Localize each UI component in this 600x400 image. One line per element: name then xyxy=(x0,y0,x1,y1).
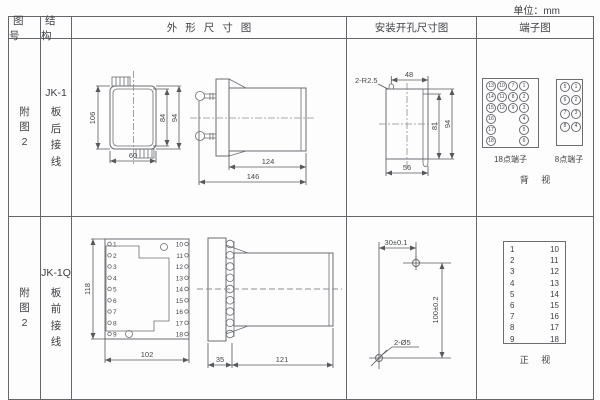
pin: 6 xyxy=(519,136,529,146)
pin: 15 xyxy=(486,103,496,113)
jk1-outline-drawing: 106 84 94 60 xyxy=(72,39,347,217)
svg-text:2-R2.5: 2-R2.5 xyxy=(355,76,378,85)
svg-text:18: 18 xyxy=(176,332,184,339)
mount-hole xyxy=(161,244,168,251)
bottom-connector xyxy=(136,149,154,158)
pin: 4 xyxy=(519,114,529,124)
svg-text:4: 4 xyxy=(113,275,117,282)
drawing-page: 单位：mm 图号 结构 外形尺寸图 安装开孔尺寸图 端子图 附 图 2 JK-1… xyxy=(0,0,600,400)
pin: 7 xyxy=(560,109,570,119)
svg-text:14: 14 xyxy=(176,287,184,294)
dim-124: 124 xyxy=(229,153,306,170)
row2-outline-cell: 1 2 3 4 5 6 7 8 9 10 11 12 13 xyxy=(72,217,347,399)
right-terminals: 10 11 12 13 14 15 16 17 18 xyxy=(176,242,189,339)
svg-text:106: 106 xyxy=(88,112,97,125)
terminal-col-left: 12 34 56 78 9 xyxy=(510,244,514,341)
terminal-screw xyxy=(196,92,217,101)
pin: 7 xyxy=(508,81,518,91)
row2-terminal-cell: 12 34 56 78 9 1011 1213 1415 1617 18 正 视 xyxy=(477,217,593,399)
label-8pt: 8点端子 xyxy=(549,154,589,165)
hole-label: 2-Ø5 xyxy=(382,338,419,355)
pin: 3 xyxy=(519,103,529,113)
svg-text:2: 2 xyxy=(113,253,117,260)
svg-text:12: 12 xyxy=(176,264,184,271)
pin: 17 xyxy=(486,125,496,135)
pin: 1 xyxy=(519,81,529,91)
svg-text:94: 94 xyxy=(443,120,452,128)
dim-30: 30±0.1 xyxy=(379,238,416,369)
pin: 2 xyxy=(519,92,529,102)
dim-100: 100±0.2 xyxy=(431,263,442,358)
svg-text:16: 16 xyxy=(176,309,184,316)
svg-text:124: 124 xyxy=(262,157,275,166)
pin: 2 xyxy=(571,95,581,105)
row1-fig-no: 附 图 2 xyxy=(9,39,41,217)
header-fig-no: 图号 xyxy=(9,17,41,39)
row1-terminal-cell: 13 14 15 16 17 18 10 11 12 7 8 9 xyxy=(477,39,593,217)
svg-text:13: 13 xyxy=(176,275,184,282)
drawing-table: 图号 结构 外形尺寸图 安装开孔尺寸图 端子图 附 图 2 JK-1 板 后 接… xyxy=(8,16,594,400)
row2-fig-no: 附 图 2 xyxy=(9,217,41,399)
jk1-mounting-drawing: 2-R2.5 48 81 94 xyxy=(347,39,477,217)
terminal-col-right: 1011 1213 1415 1617 18 xyxy=(550,244,559,341)
pin: 3 xyxy=(571,109,581,119)
top-slot xyxy=(389,84,394,89)
terminal-screw xyxy=(196,132,217,141)
row1-mounting-cell: 2-R2.5 48 81 94 xyxy=(347,39,477,217)
pin: 5 xyxy=(560,82,570,92)
row1-outline-cell: 106 84 94 60 xyxy=(72,39,347,217)
dim-102: 102 xyxy=(105,339,189,363)
jk1q-mounting-drawing: 30±0.1 100±0.2 2-Ø5 xyxy=(347,217,477,399)
row1-structure: JK-1 板 后 接 线 xyxy=(41,39,72,217)
unit-label: 单位：mm xyxy=(513,2,560,17)
header-outline: 外形尺寸图 xyxy=(72,17,347,39)
svg-text:35: 35 xyxy=(216,355,224,364)
jk1q-front-view: 1 2 3 4 5 6 7 8 9 10 11 12 13 xyxy=(83,239,189,363)
label-18pt: 18点端子 xyxy=(480,154,541,165)
pin: 11 xyxy=(497,92,507,102)
pin: 1 xyxy=(571,82,581,92)
row2-mounting-cell: 30±0.1 100±0.2 2-Ø5 xyxy=(347,217,477,399)
svg-text:121: 121 xyxy=(276,355,289,364)
terminal-block-8: 5 6 7 8 1 2 3 4 xyxy=(556,79,583,146)
svg-text:84: 84 xyxy=(158,114,167,122)
pin: 5 xyxy=(519,125,529,135)
pin: 18 xyxy=(486,136,496,146)
svg-text:48: 48 xyxy=(405,70,413,79)
slot-label: 2-R2.5 xyxy=(355,76,388,89)
terminal-table: 12 34 56 78 9 1011 1213 1415 1617 18 xyxy=(503,241,566,344)
svg-text:17: 17 xyxy=(176,320,184,327)
dim-48: 48 xyxy=(391,70,428,89)
dim-81: 81 xyxy=(423,94,441,159)
top-hole xyxy=(403,256,451,270)
svg-text:7: 7 xyxy=(113,309,117,316)
pin: 13 xyxy=(486,81,496,91)
svg-text:56: 56 xyxy=(403,163,411,172)
svg-text:10: 10 xyxy=(176,242,184,249)
pin: 14 xyxy=(486,92,496,102)
header-structure: 结构 xyxy=(41,17,72,39)
mount-hole xyxy=(126,331,133,338)
row2-structure: JK-1Q 板 前 接 线 xyxy=(41,217,72,399)
jk1q-side-view: 35 121 xyxy=(197,238,342,368)
svg-text:9: 9 xyxy=(113,332,117,339)
svg-text:60: 60 xyxy=(129,151,137,160)
dim-84: 84 xyxy=(153,89,169,146)
jk1-front-view: 106 84 94 60 xyxy=(88,71,181,164)
dim-118: 118 xyxy=(83,239,105,339)
svg-text:11: 11 xyxy=(176,253,183,260)
svg-text:2-Ø5: 2-Ø5 xyxy=(394,338,411,347)
svg-text:118: 118 xyxy=(83,283,92,295)
pin: 16 xyxy=(486,114,496,124)
left-terminals: 1 2 3 4 5 6 7 8 9 xyxy=(108,242,117,339)
svg-text:94: 94 xyxy=(170,114,179,122)
svg-text:102: 102 xyxy=(141,350,154,359)
pin: 6 xyxy=(560,95,570,105)
bottom-slot xyxy=(423,89,428,167)
svg-text:30±0.1: 30±0.1 xyxy=(385,238,408,247)
dim-121: 121 xyxy=(232,355,333,365)
dim-106: 106 xyxy=(88,86,110,149)
terminal-block-18: 13 14 15 16 17 18 10 11 12 7 8 9 xyxy=(482,78,539,148)
svg-text:3: 3 xyxy=(113,264,117,271)
pin: 8 xyxy=(560,122,570,132)
pin: 4 xyxy=(571,122,581,132)
svg-text:8: 8 xyxy=(113,320,117,327)
bottom-hole xyxy=(369,350,451,366)
header-mounting: 安装开孔尺寸图 xyxy=(347,17,477,39)
top-connector xyxy=(112,77,130,86)
front-view-label: 正 视 xyxy=(477,353,593,366)
svg-text:146: 146 xyxy=(247,172,260,181)
pin: 10 xyxy=(497,81,507,91)
header-terminal: 端子图 xyxy=(477,17,593,39)
svg-text:5: 5 xyxy=(113,287,117,294)
rear-view-label: 背 视 xyxy=(477,173,593,186)
svg-text:6: 6 xyxy=(113,298,117,305)
jk1q-outline-drawing: 1 2 3 4 5 6 7 8 9 10 11 12 13 xyxy=(72,217,347,399)
svg-text:1: 1 xyxy=(113,242,117,249)
pin: 12 xyxy=(497,103,507,113)
dim-146: 146 xyxy=(199,101,306,185)
svg-text:81: 81 xyxy=(430,122,439,130)
jk1-side-view: 124 146 xyxy=(190,79,314,185)
svg-text:15: 15 xyxy=(176,298,184,305)
pin: 8 xyxy=(508,92,518,102)
dim-60: 60 xyxy=(110,151,156,163)
pin: 9 xyxy=(508,103,518,113)
svg-text:100±0.2: 100±0.2 xyxy=(431,296,440,323)
